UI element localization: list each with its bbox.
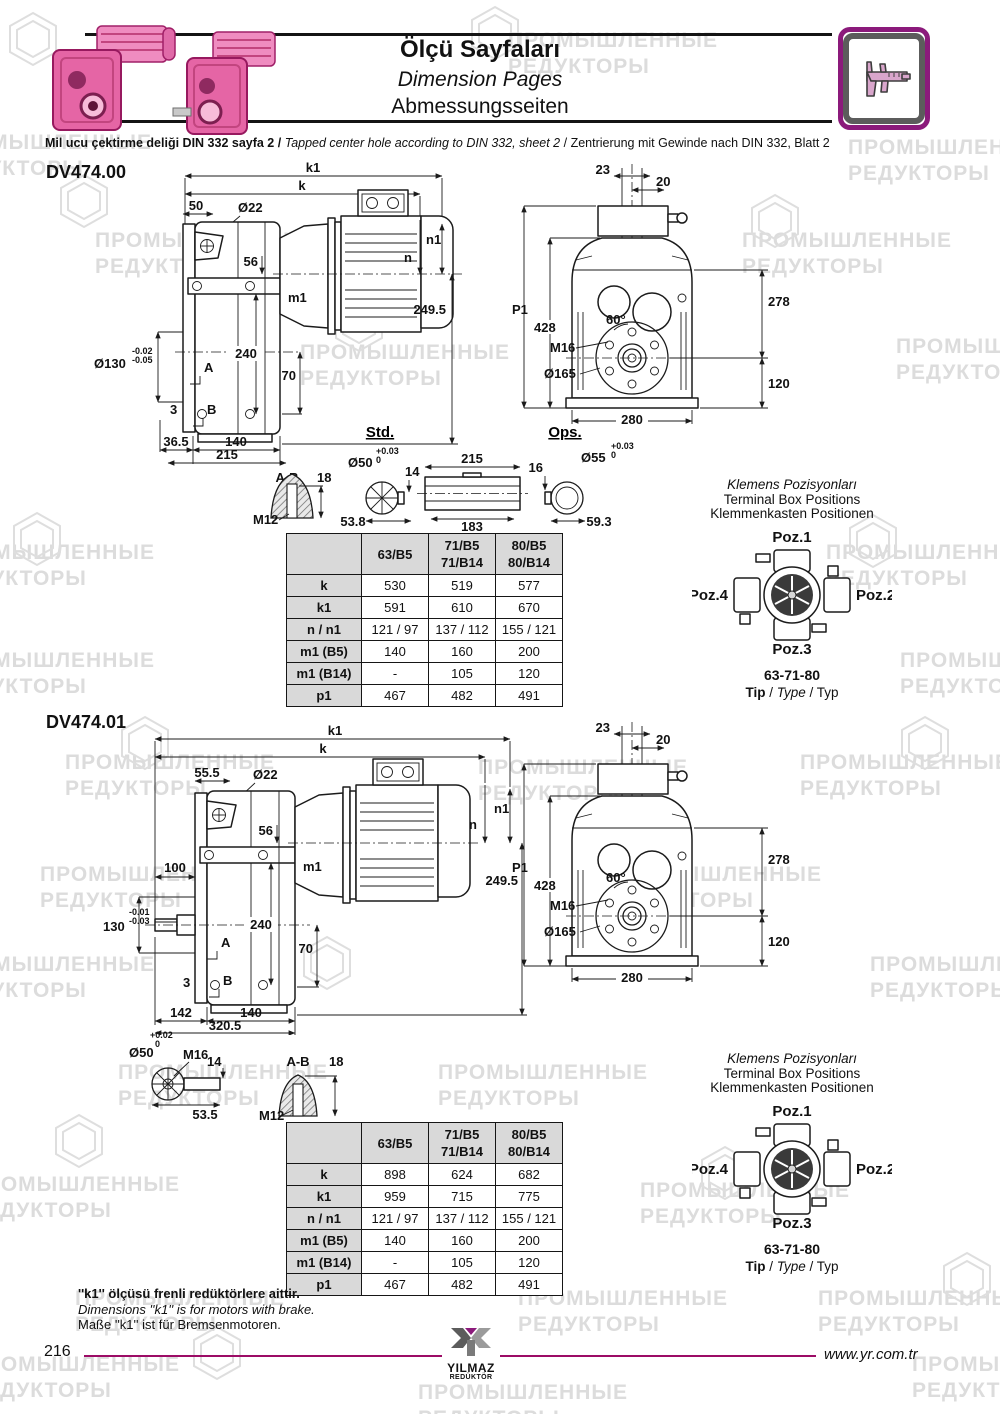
svg-text:Poz.1: Poz.1 — [772, 1103, 811, 1120]
table-row: k530519577 — [287, 575, 563, 597]
footer-rule-right — [500, 1355, 816, 1357]
svg-text:142: 142 — [170, 1005, 192, 1020]
terminal-title-turkish: Klemens Pozisyonları — [692, 1052, 892, 1067]
table-corner-cell — [287, 1123, 362, 1164]
table-cell: 491 — [496, 685, 563, 707]
table-corner-cell — [287, 534, 362, 575]
column-header: 80/B580/B14 — [496, 534, 563, 575]
svg-text:0: 0 — [155, 1039, 160, 1049]
housing-outline — [566, 764, 698, 966]
table-cell: 140 — [362, 641, 429, 663]
terminal-title-german: Klemmenkasten Positionen — [692, 507, 892, 522]
table-cell: 200 — [496, 641, 563, 663]
din-note: Mil ucu çektirme deliği DIN 332 sayfa 2 … — [45, 136, 830, 150]
row-header: k — [287, 575, 362, 597]
ops-shaft-end: Ops. 16 Ø55 +0.03 0 59.3 — [529, 424, 634, 529]
svg-text:0: 0 — [611, 450, 616, 460]
table-cell: 670 — [496, 597, 563, 619]
table-cell: 121 / 97 — [362, 1208, 429, 1230]
svg-text:Poz.2: Poz.2 — [856, 587, 892, 604]
dv474-00-shaft-details: A-B 18 M12 Std. Ø50 +0.03 0 14 53.8 215 … — [245, 420, 635, 535]
table-cell: 120 — [496, 1252, 563, 1274]
svg-text:53.5: 53.5 — [192, 1107, 217, 1122]
keyway-section-a-b: A-B 18 M12 — [259, 1054, 343, 1123]
svg-text:M16: M16 — [183, 1047, 208, 1062]
frame-sizes: 63-71-80 — [692, 1241, 892, 1257]
svg-text:Ø50: Ø50 — [129, 1045, 154, 1060]
hexagon-watermark-icon — [188, 1324, 246, 1382]
svg-text:249.5: 249.5 — [413, 302, 446, 317]
std-shaft-end: Std. Ø50 +0.03 0 14 53.8 — [340, 424, 420, 529]
svg-text:n1: n1 — [426, 232, 441, 247]
caliper-icon-frame — [838, 27, 930, 130]
row-header: m1 (B5) — [287, 641, 362, 663]
terminal-box-positions-dv474-00: Klemens Pozisyonları Terminal Box Positi… — [692, 478, 892, 700]
housing-outline — [566, 206, 698, 408]
gearmotor-photo-pair — [35, 18, 285, 140]
terminal-title-german: Klemmenkasten Positionen — [692, 1081, 892, 1096]
table-header-row: 63/B5 71/B571/B14 80/B580/B14 — [287, 534, 563, 575]
watermark: ПРОМЫШЛЕННЫЕРЕДУКТОРЫ — [418, 1380, 628, 1414]
dimension-table-dv474-01: 63/B5 71/B571/B14 80/B580/B14 k898624682… — [286, 1122, 563, 1296]
svg-text:53.8: 53.8 — [340, 514, 365, 529]
row-header: m1 (B14) — [287, 663, 362, 685]
caliper-icon-inner — [843, 33, 925, 124]
table-cell: 624 — [429, 1164, 496, 1186]
row-header: k1 — [287, 1186, 362, 1208]
svg-text:Poz.1: Poz.1 — [772, 529, 811, 546]
svg-text:240: 240 — [250, 917, 272, 932]
table-cell: 137 / 112 — [429, 1208, 496, 1230]
terminal-position-diagram: Poz.1 Poz.4 Poz.2 Poz.3 — [692, 1100, 892, 1230]
table-row: p1467482491 — [287, 1274, 563, 1296]
watermark: ПРОМЫШЛЕННЫЕРЕДУКТОРЫ — [0, 1352, 180, 1404]
table-cell: - — [362, 663, 429, 685]
k1-footnote: ''k1'' ölçüsü frenli redüktörlere aittir… — [78, 1286, 315, 1333]
svg-text:Poz.4: Poz.4 — [692, 587, 729, 604]
svg-text:Ø22: Ø22 — [238, 200, 263, 215]
column-header: 80/B580/B14 — [496, 1123, 563, 1164]
svg-text:280: 280 — [621, 970, 643, 985]
watermark: ПРОМЫШЛЕННЫЕРЕДУКТОРЫ — [0, 1172, 180, 1224]
page-number: 216 — [44, 1343, 71, 1361]
table-cell: 137 / 112 — [429, 619, 496, 641]
row-header: k1 — [287, 597, 362, 619]
gearbox-outline — [183, 222, 280, 442]
title-german: Abmessungsseiten — [300, 95, 660, 119]
svg-text:278: 278 — [768, 294, 790, 309]
title-turkish: Ölçü Sayfaları — [300, 36, 660, 64]
title-english: Dimension Pages — [300, 68, 660, 92]
column-header: 71/B571/B14 — [429, 534, 496, 575]
terminal-box-positions-dv474-01: Klemens Pozisyonları Terminal Box Positi… — [692, 1052, 892, 1274]
svg-text:120: 120 — [768, 934, 790, 949]
table-row: p1467482491 — [287, 685, 563, 707]
svg-text:23: 23 — [596, 720, 610, 735]
svg-text:k: k — [319, 741, 327, 756]
table-cell: 682 — [496, 1164, 563, 1186]
footnote-turkish: ''k1'' ölçüsü frenli redüktörlere aittir… — [78, 1286, 315, 1302]
svg-text:14: 14 — [207, 1054, 222, 1069]
yilmaz-reduktor-logo: YILMAZ REDÜKTÖR — [443, 1326, 499, 1381]
svg-text:A-B: A-B — [286, 1054, 309, 1069]
svg-text:18: 18 — [317, 470, 331, 485]
table-cell: 959 — [362, 1186, 429, 1208]
gearmotor-photo-right — [173, 32, 275, 134]
terminal-position-diagram: Poz.1 Poz.4 Poz.2 Poz.3 — [692, 526, 892, 656]
svg-text:23: 23 — [596, 162, 610, 177]
dv474-00-front-view-drawing: 23 20 60° M16 Ø165 — [510, 162, 810, 432]
table-header-row: 63/B5 71/B571/B14 80/B580/B14 — [287, 1123, 563, 1164]
table-row: k1959715775 — [287, 1186, 563, 1208]
table-row: n / n1121 / 97137 / 112155 / 121 — [287, 1208, 563, 1230]
row-header: n / n1 — [287, 619, 362, 641]
svg-text:n: n — [404, 250, 412, 265]
svg-text:56: 56 — [259, 823, 273, 838]
table-cell: 610 — [429, 597, 496, 619]
table-cell: 898 — [362, 1164, 429, 1186]
svg-text:Ops.: Ops. — [548, 424, 581, 441]
row-header: n / n1 — [287, 1208, 362, 1230]
svg-text:120: 120 — [768, 376, 790, 391]
row-header: m1 (B5) — [287, 1230, 362, 1252]
caliper-icon — [855, 50, 913, 108]
svg-text:100: 100 — [164, 860, 186, 875]
table-cell: 140 — [362, 1230, 429, 1252]
svg-text:56: 56 — [244, 254, 258, 269]
svg-text:36.5: 36.5 — [163, 434, 188, 449]
svg-text:M12: M12 — [259, 1108, 284, 1123]
footnote-english: Dimensions ''k1'' is for motors with bra… — [78, 1302, 315, 1318]
motor-outline — [288, 759, 479, 903]
svg-text:M12: M12 — [253, 512, 278, 527]
svg-text:Poz.4: Poz.4 — [692, 1161, 729, 1178]
table-cell: 577 — [496, 575, 563, 597]
watermark: ПРОМЫШЛЕННЫЕРЕДУКТОРЫ — [0, 648, 155, 700]
table-cell: 155 / 121 — [496, 1208, 563, 1230]
table-cell: - — [362, 1252, 429, 1274]
column-header: 63/B5 — [362, 1123, 429, 1164]
hexagon-watermark-icon — [896, 714, 954, 772]
table-cell: 200 — [496, 1230, 563, 1252]
svg-text:m1: m1 — [288, 290, 307, 305]
svg-text:-0.05: -0.05 — [132, 355, 153, 365]
table-cell: 591 — [362, 597, 429, 619]
svg-text:M16: M16 — [550, 898, 575, 913]
svg-text:3: 3 — [170, 402, 177, 417]
svg-text:428: 428 — [534, 320, 556, 335]
svg-text:Poz.2: Poz.2 — [856, 1161, 892, 1178]
svg-text:A: A — [204, 360, 214, 375]
type-label: Tip / Type / Typ — [692, 685, 892, 700]
table-cell: 120 — [496, 663, 563, 685]
watermark: ПРОМЫШЛЕННЫЕРЕДУКТОРЫ — [438, 1060, 648, 1112]
table-row: m1 (B5)140160200 — [287, 641, 563, 663]
svg-text:16: 16 — [529, 460, 543, 475]
din-note-german: Zentrierung mit Gewinde nach DIN 332, Bl… — [571, 136, 830, 150]
column-header: 71/B571/B14 — [429, 1123, 496, 1164]
table-cell: 121 / 97 — [362, 619, 429, 641]
svg-text:P1: P1 — [512, 302, 528, 317]
svg-text:55.5: 55.5 — [194, 765, 219, 780]
table-cell: 160 — [429, 1230, 496, 1252]
dv474-01-front-view-drawing: 23 20 60° M16 Ø165 — [510, 720, 810, 990]
svg-text:215: 215 — [216, 447, 238, 462]
type-label: Tip / Type / Typ — [692, 1259, 892, 1274]
logo-subname: REDÜKTÖR — [443, 1374, 499, 1381]
svg-text:0: 0 — [376, 455, 381, 465]
svg-text:k: k — [298, 178, 306, 193]
table-cell: 467 — [362, 685, 429, 707]
dv474-01-shaft-details: +0.02 0 Ø50 M16 14 53.5 A-B 18 M12 — [95, 1020, 435, 1125]
svg-text:70: 70 — [299, 941, 313, 956]
svg-text:Ø50: Ø50 — [348, 455, 373, 470]
svg-text:M16: M16 — [550, 340, 575, 355]
svg-text:Ø165: Ø165 — [544, 366, 576, 381]
dimension-table-dv474-00: 63/B5 71/B571/B14 80/B580/B14 k530519577… — [286, 533, 563, 707]
table-row: m1 (B5)140160200 — [287, 1230, 563, 1252]
table-cell: 105 — [429, 1252, 496, 1274]
table-cell: 160 — [429, 641, 496, 663]
svg-text:Std.: Std. — [366, 424, 394, 441]
svg-text:20: 20 — [656, 174, 670, 189]
row-header: k — [287, 1164, 362, 1186]
frame-sizes: 63-71-80 — [692, 667, 892, 683]
hexagon-watermark-icon — [938, 1250, 996, 1308]
svg-text:Poz.3: Poz.3 — [772, 641, 811, 656]
column-header: 63/B5 — [362, 534, 429, 575]
dv474-01-side-view-drawing: k1 k 55.5 Ø22 — [95, 725, 545, 1035]
svg-text:n1: n1 — [494, 801, 509, 816]
table-row: k1591610670 — [287, 597, 563, 619]
logo-name: YILMAZ — [443, 1363, 499, 1374]
hexagon-watermark-icon — [8, 510, 66, 568]
svg-text:P1: P1 — [512, 860, 528, 875]
svg-text:50: 50 — [189, 198, 203, 213]
footer-rule-left — [84, 1355, 442, 1357]
terminal-title-english: Terminal Box Positions — [692, 493, 892, 508]
terminal-title-turkish: Klemens Pozisyonları — [692, 478, 892, 493]
watermark: ПРОМЫШЛЕННЫЕРЕДУКТОРЫ — [896, 334, 1000, 386]
svg-text:240: 240 — [235, 346, 257, 361]
svg-text:Ø165: Ø165 — [544, 924, 576, 939]
svg-text:3: 3 — [183, 975, 190, 990]
watermark: ПРОМЫШЛЕННЫЕРЕДУКТОРЫ — [900, 648, 1000, 700]
svg-text:B: B — [223, 973, 232, 988]
gearmotor-photo-left — [53, 26, 175, 130]
table-cell: 482 — [429, 685, 496, 707]
svg-text:k1: k1 — [306, 162, 320, 175]
table-row: m1 (B14)-105120 — [287, 1252, 563, 1274]
svg-text:Ø22: Ø22 — [253, 767, 278, 782]
watermark: ПРОМЫШЛЕННЫЕРЕДУКТОРЫ — [848, 135, 1000, 187]
svg-text:278: 278 — [768, 852, 790, 867]
table-cell: 467 — [362, 1274, 429, 1296]
table-row: n / n1121 / 97137 / 112155 / 121 — [287, 619, 563, 641]
model-label-dv474-01: DV474.01 — [46, 712, 126, 733]
svg-text:Ø130: Ø130 — [94, 356, 126, 371]
row-header: m1 (B14) — [287, 1252, 362, 1274]
website-url: www.yr.com.tr — [824, 1346, 918, 1363]
keyway-section-a-b: A-B 18 M12 — [253, 470, 331, 527]
watermark: ПРОМЫШЛЕННЫЕРЕДУКТОРЫ — [870, 952, 1000, 1004]
svg-text:Ø55: Ø55 — [581, 450, 606, 465]
svg-text:215: 215 — [461, 451, 483, 466]
footnote-german: Maße ''k1'' ist für Bremsenmotoren. — [78, 1317, 315, 1333]
svg-text:+0.02: +0.02 — [150, 1030, 173, 1040]
table-row: k898624682 — [287, 1164, 563, 1186]
svg-text:183: 183 — [461, 519, 483, 534]
svg-text:Poz.3: Poz.3 — [772, 1215, 811, 1230]
svg-text:B: B — [207, 402, 216, 417]
svg-text:428: 428 — [534, 878, 556, 893]
svg-text:A: A — [221, 935, 231, 950]
svg-text:59.3: 59.3 — [586, 514, 611, 529]
svg-text:70: 70 — [282, 368, 296, 383]
table-cell: 105 — [429, 663, 496, 685]
din-note-english: Tapped center hole according to DIN 332,… — [285, 136, 560, 150]
svg-text:m1: m1 — [303, 859, 322, 874]
table-cell: 715 — [429, 1186, 496, 1208]
yilmaz-logo-icon — [449, 1326, 493, 1358]
hollow-shaft-sleeve: 215 183 — [417, 451, 528, 534]
svg-text:20: 20 — [656, 732, 670, 747]
svg-text:k1: k1 — [328, 725, 342, 738]
table-cell: 482 — [429, 1274, 496, 1296]
row-header: p1 — [287, 685, 362, 707]
table-cell: 775 — [496, 1186, 563, 1208]
svg-text:140: 140 — [240, 1005, 262, 1020]
table-row: m1 (B14)-105120 — [287, 663, 563, 685]
din-note-turkish: Mil ucu çektirme deliği DIN 332 sayfa 2 … — [45, 136, 281, 150]
svg-text:14: 14 — [405, 464, 420, 479]
svg-text:n: n — [469, 817, 477, 832]
watermark: ПРОМЫШЛЕННЫЕРЕДУКТОРЫ — [912, 1352, 1000, 1404]
page-title: Ölçü Sayfaları Dimension Pages Abmessung… — [300, 36, 660, 119]
table-cell: 155 / 121 — [496, 619, 563, 641]
din-note-separator: / — [564, 136, 567, 150]
terminal-title-english: Terminal Box Positions — [692, 1067, 892, 1082]
svg-text:18: 18 — [329, 1054, 343, 1069]
table-cell: 491 — [496, 1274, 563, 1296]
table-cell: 530 — [362, 575, 429, 597]
svg-text:130: 130 — [103, 919, 125, 934]
model-label-dv474-00: DV474.00 — [46, 162, 126, 183]
solid-shaft-end: +0.02 0 Ø50 M16 14 53.5 — [129, 1030, 223, 1122]
table-cell: 519 — [429, 575, 496, 597]
catalog-page: ПРОМЫШЛЕННЫЕРЕДУКТОРЫ ПРОМЫШЛЕННЫЕРЕДУКТ… — [0, 0, 1000, 1414]
